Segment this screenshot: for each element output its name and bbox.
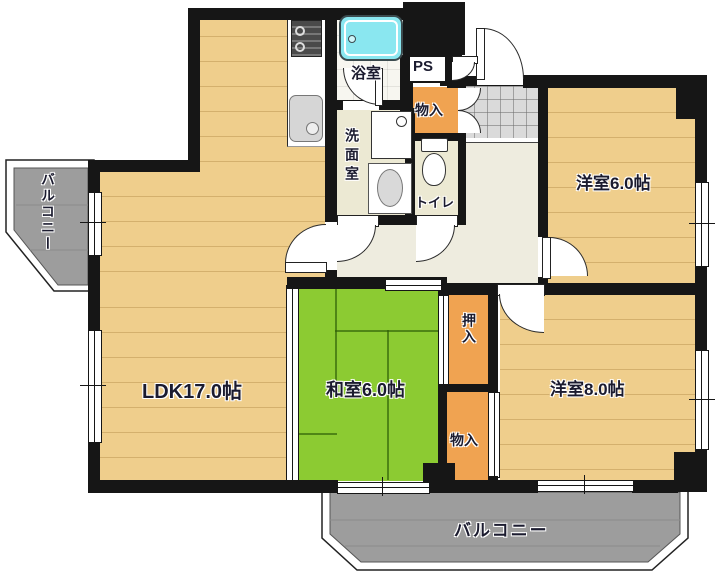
sliding-door-ldk-washitsu xyxy=(286,285,299,483)
bedroom6-door-leaf xyxy=(542,237,551,279)
room-label-toilet: トイレ xyxy=(415,192,454,211)
window-tick xyxy=(80,222,106,223)
window xyxy=(695,350,709,450)
floor-plan: バルコニー xyxy=(0,0,720,576)
room-label-bedroom6: 洋室6.0帖 xyxy=(576,169,651,194)
window-tick xyxy=(689,399,715,400)
entrance-door-arc xyxy=(483,28,524,79)
sliding-door-closet-south xyxy=(488,392,500,478)
balcony-left-label: バルコニー xyxy=(38,172,58,252)
wall xyxy=(88,160,200,172)
window xyxy=(537,480,634,492)
wall xyxy=(458,131,466,223)
hallway-entry xyxy=(462,142,538,225)
room-label-ldk: LDK17.0帖 xyxy=(142,375,242,404)
entrance-door-leaf xyxy=(476,28,485,80)
window xyxy=(88,330,102,443)
tatami-line xyxy=(335,285,337,385)
washing-machine-icon xyxy=(368,163,412,214)
wall xyxy=(488,476,498,493)
window-tick xyxy=(382,477,383,496)
sink-icon xyxy=(289,95,323,142)
wall xyxy=(632,480,678,493)
stove-icon xyxy=(291,20,322,57)
bathtub-icon xyxy=(339,15,403,61)
room-label-bedroom8: 洋室8.0帖 xyxy=(550,375,625,400)
wall xyxy=(188,8,200,172)
wall xyxy=(502,480,538,493)
room-label-entry-closet: 物入 xyxy=(415,100,443,120)
window xyxy=(88,192,102,256)
wall xyxy=(523,75,707,88)
sliding-door-hall-washitsu xyxy=(385,279,442,291)
window-tick xyxy=(584,475,585,494)
ldk-door-leaf xyxy=(285,262,327,273)
tatami-line xyxy=(295,433,337,435)
wall xyxy=(438,283,707,295)
room-label-pipe-space: PS xyxy=(413,58,433,75)
room-label-washitsu: 和室6.0帖 xyxy=(326,376,405,402)
tatami-line xyxy=(387,330,389,480)
toilet-icon xyxy=(420,138,450,190)
wall xyxy=(438,384,447,481)
window-tick xyxy=(80,385,106,386)
wall xyxy=(446,384,490,392)
room-label-south-closet: 物入 xyxy=(450,430,478,450)
vanity-icon xyxy=(371,111,412,159)
wall xyxy=(488,295,498,392)
wall xyxy=(88,480,338,493)
sliding-door-oshiire xyxy=(438,295,449,386)
window xyxy=(695,182,709,267)
window-tick xyxy=(689,223,715,224)
room-label-oshiire: 押入 xyxy=(459,313,479,345)
room-label-washroom: 洗面室 xyxy=(342,128,362,185)
balcony-south-label: バルコニー xyxy=(454,516,549,541)
room-label-bathroom: 浴室 xyxy=(351,62,381,83)
window xyxy=(337,482,430,494)
